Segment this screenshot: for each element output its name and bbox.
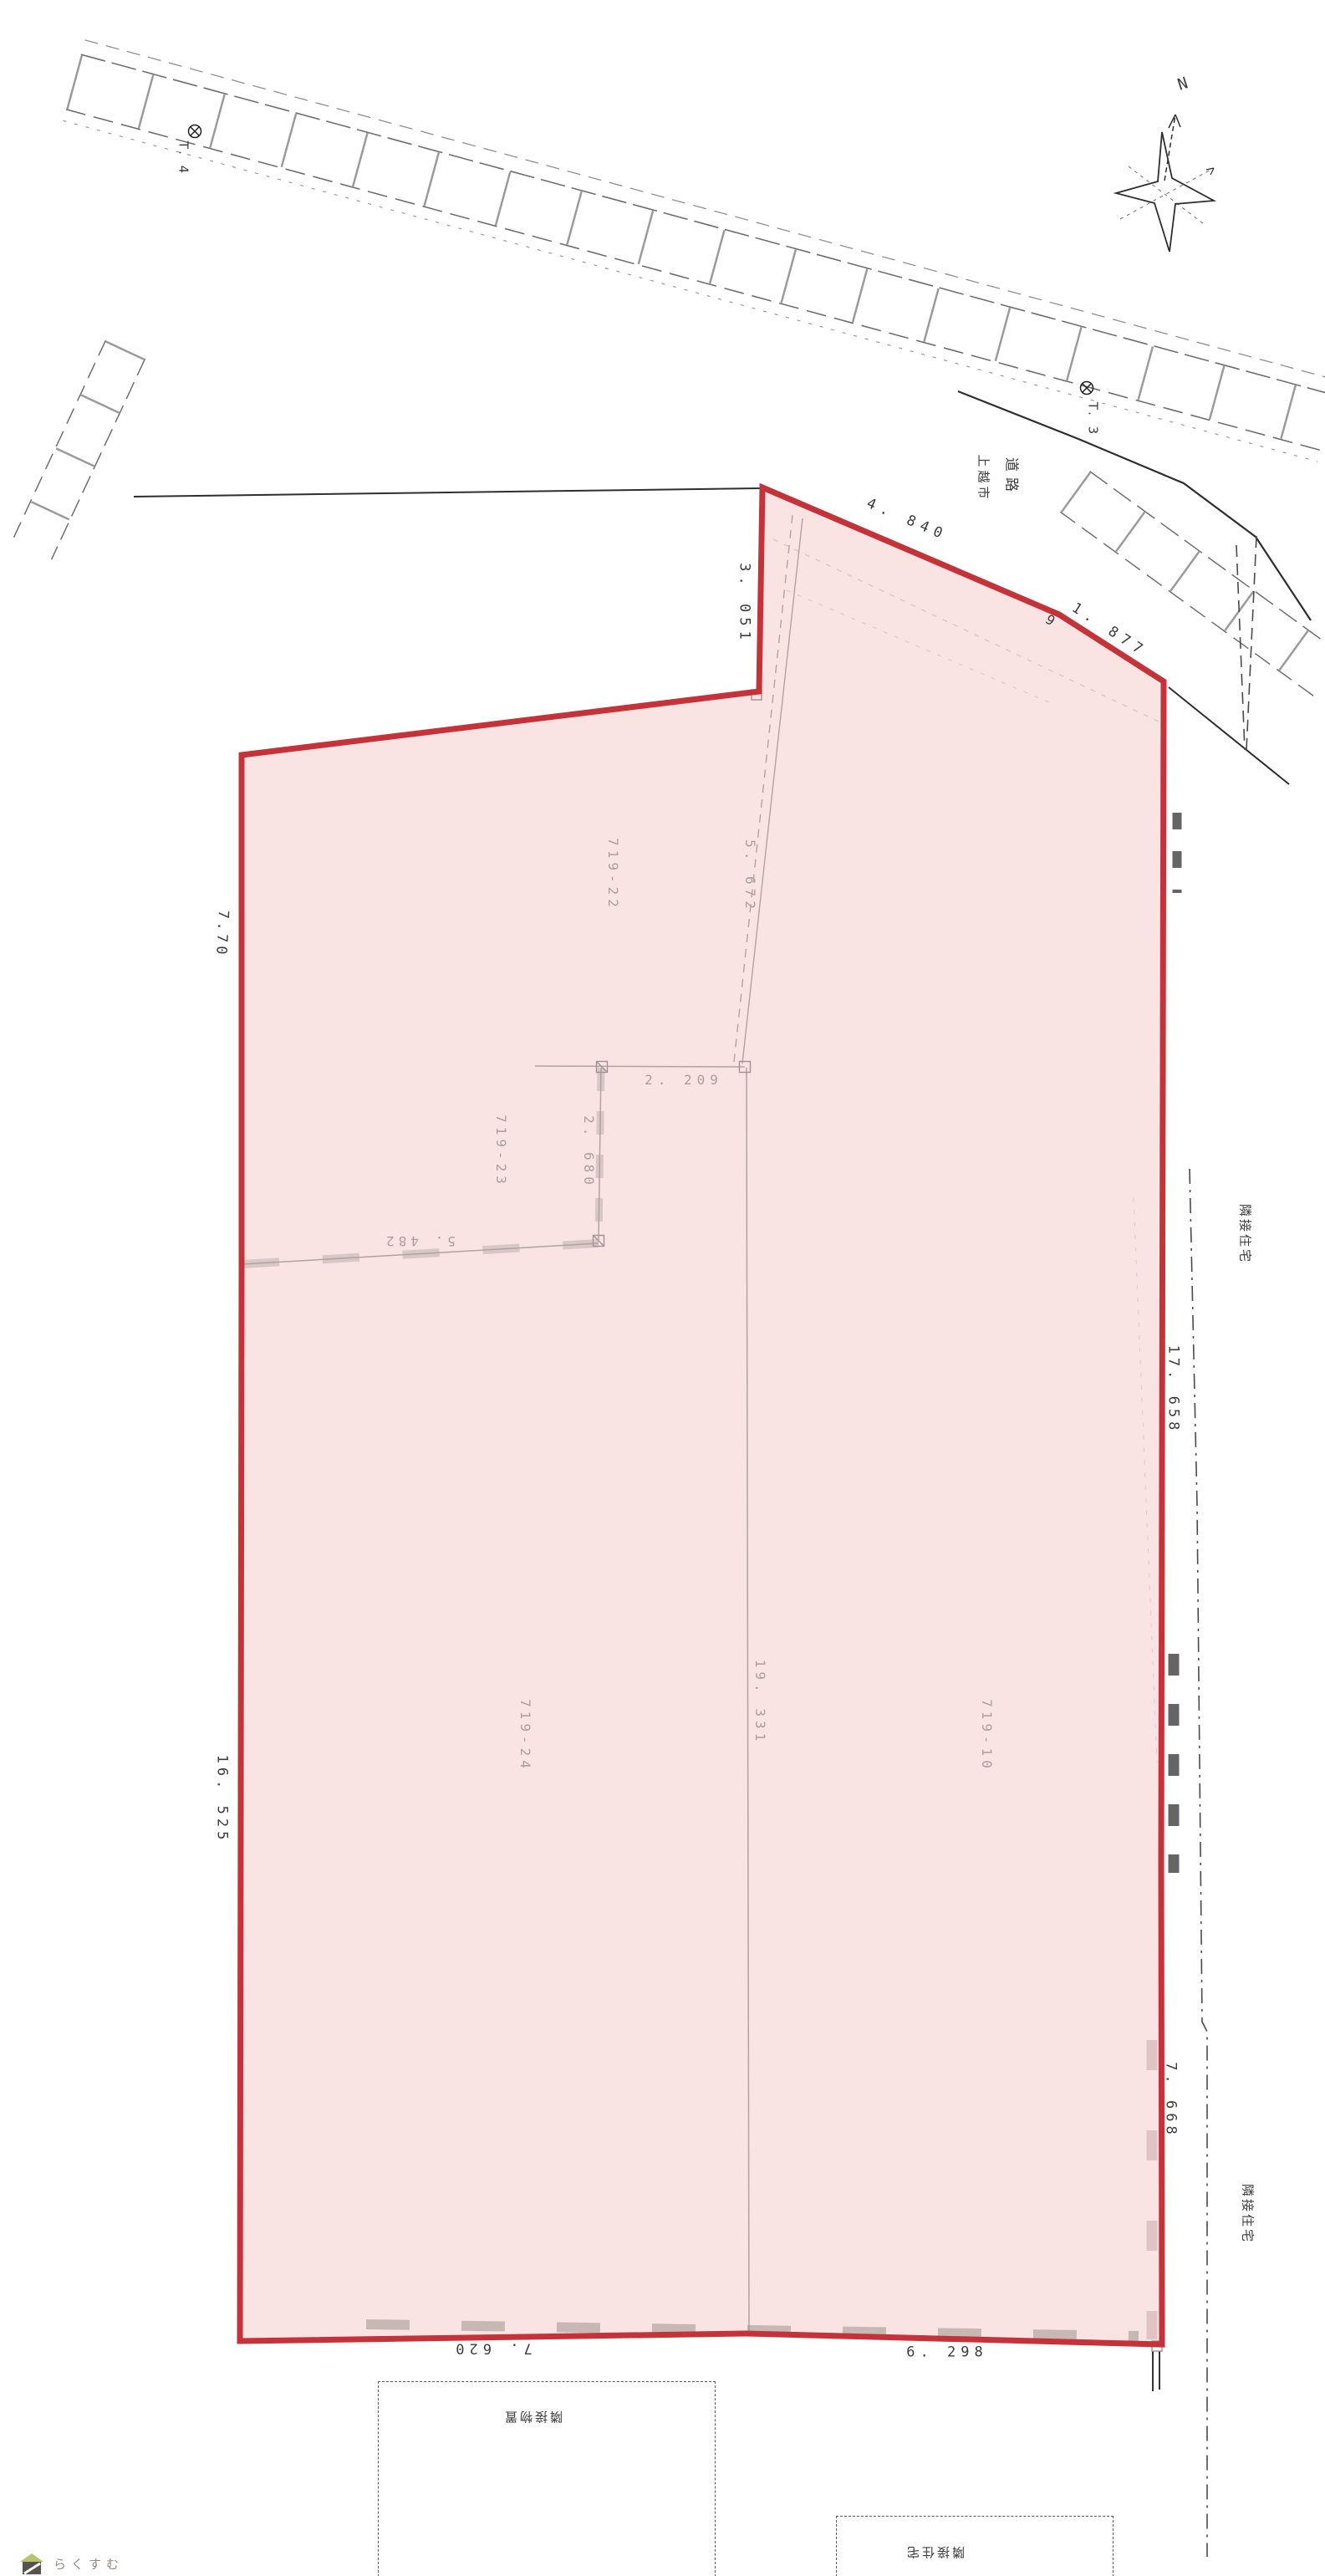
road-edge-line-east [958,391,1311,620]
neighbor-house-outline [836,2516,1114,2576]
dim-19331-label: 19. 331 [753,1660,767,1745]
neighbor-boundary-east [1190,1169,1207,2557]
road-edge-line-corner [1169,687,1289,784]
parcel-719-22-label: 719-22 [606,838,619,911]
parcel-719-23-label: 719-23 [494,1115,507,1188]
road-band-left-branch [12,340,145,559]
dim-7620-label: 7. 620 [451,2341,532,2355]
road-label: 道路 [1004,457,1018,497]
benchmark-t3-label: T. 3 [1087,402,1099,437]
survey-map-page: T. 4 T. 3 N 道路 上越市 4. 840 9 1. 877 3. 05… [0,0,1325,2576]
neighbor-shed-label: 隣接物置 [502,2410,563,2423]
dim-6298-label: 6. 298 [906,2346,987,2360]
dim-7668-label: 7. 668 [1164,2062,1178,2138]
dim-2680-label: 2. 680 [582,1115,595,1189]
dim-3051-label: 3. 051 [737,563,752,644]
house-icon [18,2552,45,2575]
city-label: 上越市 [977,454,990,502]
road-edge-line-west [134,488,762,497]
dim-5672-label: 5. 672 [743,839,757,913]
parcel-719-24-label: 719-24 [518,1699,532,1773]
neighbor-line-ne-b [1246,536,1256,750]
rakusumu-logo: らくすむ [18,2552,124,2575]
parcel-719-10-label: 719-10 [980,1699,993,1773]
neighbor-line-ne-a [1236,545,1245,750]
adjacent-house-east-upper-label: 隣接住宅 [1239,1204,1251,1264]
dim-770-label: 7.70 [213,910,230,958]
logo-text: らくすむ [54,2555,124,2573]
benchmark-t4-label: T. 4 [177,141,190,176]
dim-16525-label: 16. 525 [215,1755,229,1844]
dim-2209-label: 2. 209 [645,1074,723,1087]
compass-rose [1116,115,1214,252]
road-band-main [63,40,1325,462]
survey-drawing [0,0,1325,2576]
adjacent-house-east-lower-label: 隣接住宅 [1241,2184,1254,2244]
benchmark-t4-symbol [189,125,201,138]
dim-17658-label: 17. 658 [1166,1345,1180,1435]
parcel-area [240,487,1164,2344]
dim-5482-label: 5. 482 [382,1234,456,1247]
neighbor-house-bottom-label: 隣接住宅 [905,2546,965,2558]
